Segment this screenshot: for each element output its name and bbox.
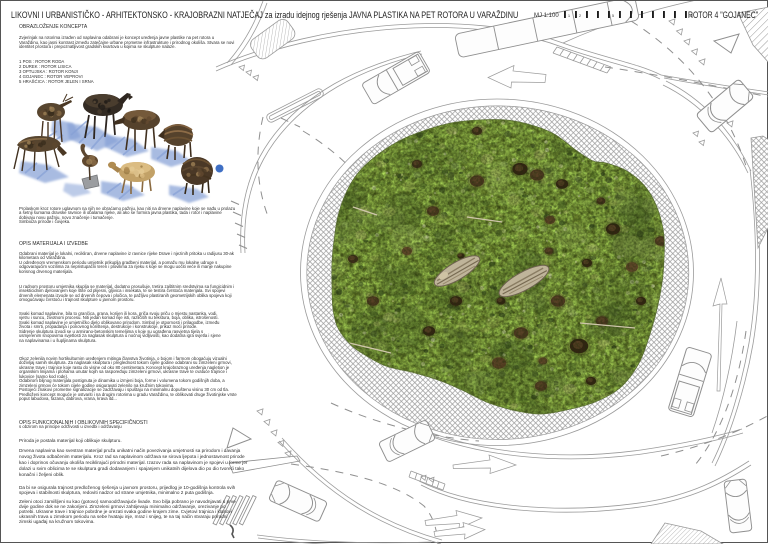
svg-text:2: 2 <box>579 14 581 18</box>
svg-text:MJ 1:100: MJ 1:100 <box>534 13 559 19</box>
svg-text:1: 1 <box>568 14 570 18</box>
svg-text:LIKOVNI I URBANISTIČKO - ARHIT: LIKOVNI I URBANISTIČKO - ARHITEKTONSKO -… <box>11 9 518 20</box>
svg-text:5: 5 <box>612 14 614 18</box>
svg-text:ROTOR 4 "GOJANEC": ROTOR 4 "GOJANEC" <box>688 10 758 20</box>
